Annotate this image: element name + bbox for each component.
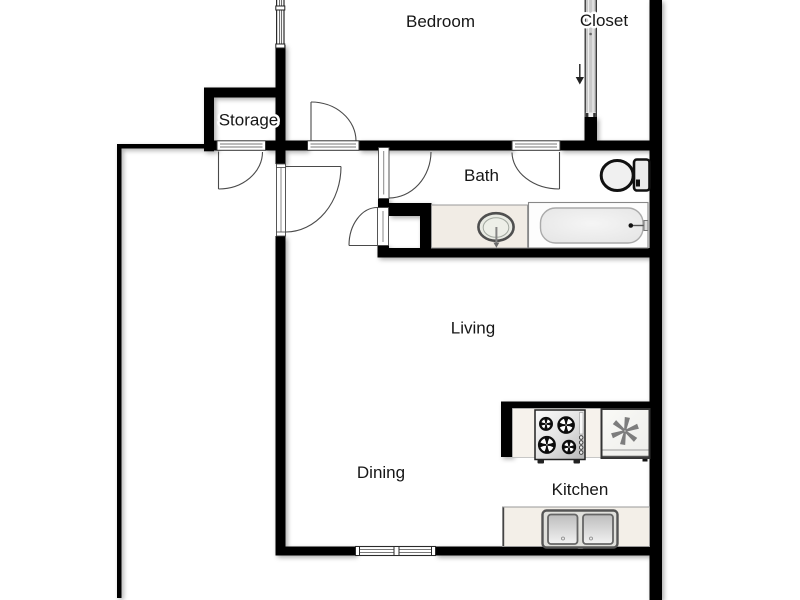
svg-text:Storage: Storage bbox=[219, 111, 279, 130]
svg-text:Living: Living bbox=[451, 319, 495, 338]
svg-text:Dining: Dining bbox=[357, 463, 405, 482]
svg-text:Kitchen: Kitchen bbox=[552, 480, 609, 499]
svg-text:Closet: Closet bbox=[580, 11, 628, 30]
svg-text:Bath: Bath bbox=[464, 166, 499, 185]
svg-text:Bedroom: Bedroom bbox=[406, 12, 475, 31]
